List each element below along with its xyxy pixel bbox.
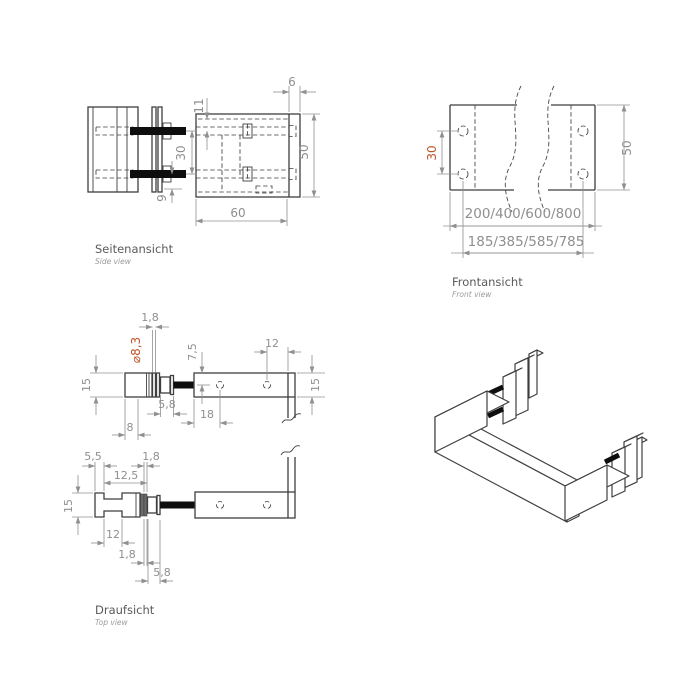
drawing-canvas: 6 11 30 9 50 60 Seitenansich — [0, 0, 699, 700]
dim-5-5: 5,5 — [84, 450, 102, 463]
front-view-title: Frontansicht — [452, 275, 523, 289]
dim-l-5-8: 5,8 — [153, 566, 171, 579]
dim-50-front: 50 — [620, 140, 634, 155]
top-view-title: Draufsicht — [95, 603, 155, 617]
dim-l-12: 12 — [106, 528, 120, 541]
top-view-lower: 5,5 1,8 12,5 15 12 — [62, 446, 300, 627]
top-lower-dimensions: 5,5 1,8 12,5 15 12 — [62, 450, 173, 584]
side-view-screw-top — [130, 127, 186, 135]
top-lower-leg — [195, 446, 300, 518]
front-view: 30 50 200/400/600/800 185/385/585/785 Fr… — [425, 86, 634, 299]
dim-6: 6 — [288, 75, 296, 89]
dim-u-12: 12 — [265, 337, 279, 350]
dim-dia-8-3: ⌀8,3 — [129, 337, 143, 363]
dim-l-1-8-bottom: 1,8 — [118, 548, 136, 561]
side-view-screw-bottom — [130, 170, 186, 178]
side-view-gaskets — [152, 107, 171, 192]
top-view-upper: 1,8 ⌀8,3 7,5 12 15 15 — [80, 311, 325, 440]
top-lower-screw — [160, 502, 195, 509]
dim-l-15: 15 — [62, 499, 75, 513]
iso-right-clamp — [612, 433, 647, 497]
break-mark-lower — [281, 446, 300, 455]
front-view-bar — [450, 86, 595, 212]
dim-11: 11 — [192, 98, 206, 113]
side-view-profile-block — [88, 107, 138, 192]
side-view-subtitle: Side view — [95, 257, 132, 266]
front-view-subtitle: Front view — [452, 290, 492, 299]
dim-lengths: 200/400/600/800 — [465, 206, 582, 222]
dim-u-15-left: 15 — [80, 378, 93, 392]
top-view-subtitle: Top view — [95, 618, 129, 627]
dim-8: 8 — [127, 421, 134, 434]
dim-30-front: 30 — [425, 145, 439, 160]
dim-50-side: 50 — [297, 144, 311, 159]
top-upper-post — [125, 373, 174, 397]
iso-left-clamp — [503, 350, 543, 424]
dim-u-1-8: 1,8 — [141, 311, 159, 324]
dim-18: 18 — [200, 408, 214, 421]
dim-l-1-8-top: 1,8 — [142, 450, 160, 463]
dim-u-15-right: 15 — [309, 378, 322, 392]
dim-60: 60 — [230, 206, 245, 220]
dim-spacings: 185/385/585/785 — [468, 234, 585, 250]
top-lower-post — [95, 493, 160, 517]
technical-drawing-sheet: 6 11 30 9 50 60 Seitenansich — [0, 0, 699, 700]
front-view-dimensions: 30 50 200/400/600/800 185/385/585/785 — [425, 105, 634, 258]
side-view: 6 11 30 9 50 60 Seitenansich — [88, 75, 320, 266]
dim-30-side: 30 — [174, 145, 188, 160]
side-view-handle-section — [196, 114, 300, 197]
dim-7-5: 7,5 — [186, 343, 199, 361]
break-mark-upper — [282, 414, 301, 423]
dim-u-5-8: 5,8 — [158, 398, 176, 411]
dim-12-5: 12,5 — [114, 469, 139, 482]
isometric-view — [435, 350, 647, 522]
dim-9: 9 — [155, 194, 169, 202]
side-view-title: Seitenansicht — [95, 242, 174, 256]
top-upper-screw — [174, 382, 195, 389]
